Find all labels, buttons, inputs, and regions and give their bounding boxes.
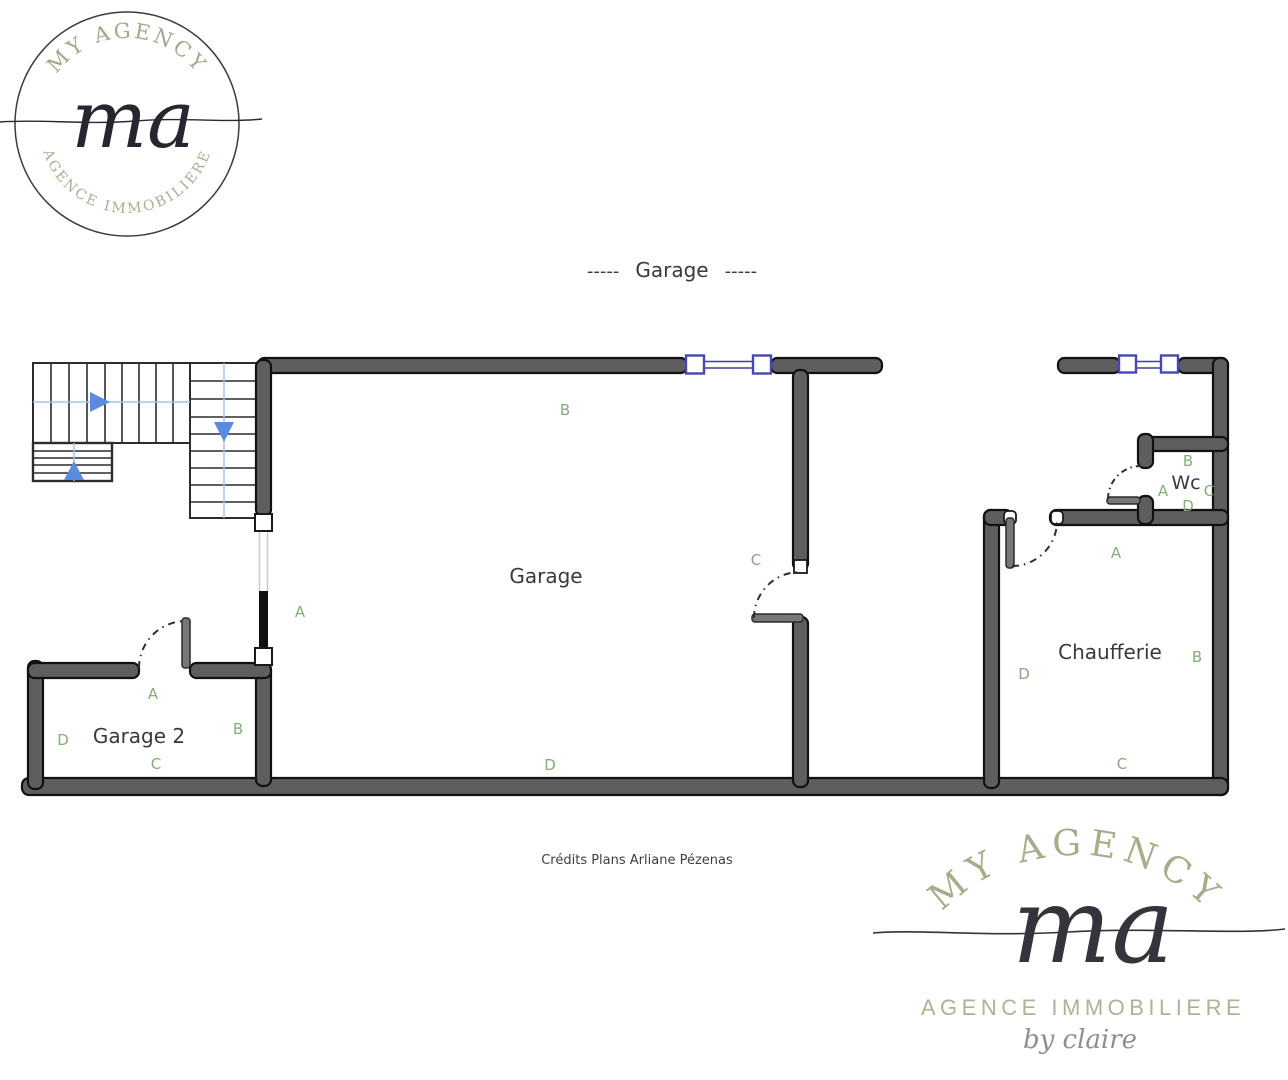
chaufferie-door-swing-arc [1012, 521, 1057, 566]
window-frame-square [753, 356, 771, 374]
wall-letter-chaufferie-a: A [1111, 544, 1122, 562]
room-label-chaufferie: Chaufferie [1058, 640, 1162, 664]
wall-letter-garage-d: D [544, 756, 556, 774]
wall-letter-wc-d: D [1182, 497, 1194, 515]
wall-connector-square [255, 648, 272, 665]
wall-letter-garage2-d: D [57, 731, 69, 749]
logo-monogram: ma [71, 73, 195, 166]
wall-letter-garage-b: B [560, 401, 570, 419]
window-frame-square [1119, 356, 1136, 373]
central-door-swing-arc [754, 572, 800, 618]
window-top-right [1119, 356, 1178, 373]
wall-letter-wc-b: B [1183, 452, 1193, 470]
garage2-door-swing-arc [139, 621, 186, 668]
wall-letter-wc-c: C [1204, 482, 1214, 500]
logo-subtitle: AGENCE IMMOBILIERE [921, 995, 1245, 1020]
window-frame-square [686, 356, 704, 374]
wall-central-lower [793, 617, 808, 787]
wall-connector-square [794, 560, 807, 573]
window-frame-square [1161, 356, 1178, 373]
wall-right-exterior [1213, 358, 1228, 795]
wall-letter-garage2-a: A [148, 685, 159, 703]
garage-left-opening [255, 514, 272, 665]
wall-chaufferie-left [984, 510, 999, 788]
wall-letter-garage2-b: B [233, 720, 243, 738]
wall-wc-stub-upper [1138, 434, 1153, 468]
wall-connector-square [1051, 511, 1063, 524]
room-label-garage2: Garage 2 [93, 724, 185, 748]
logo-byline: by claire [1023, 1025, 1137, 1055]
page: -----Garage----- [0, 0, 1288, 1080]
logo-monogram: ma [1012, 865, 1174, 987]
wall-letter-chaufferie-d: D [1018, 665, 1030, 683]
central-door-leaf [752, 614, 803, 622]
opening-jamb-lines [260, 531, 268, 591]
garage2-door-leaf [182, 618, 190, 668]
wall-garage2-left [28, 661, 43, 789]
agency-logo-bottom-right: MY AGENCY ma AGENCE IMMOBILIERE by clair… [858, 790, 1288, 1080]
window-glass-lines [1136, 362, 1162, 369]
wall-garage-left-upper [256, 360, 271, 516]
wall-garage-left-lower [256, 664, 271, 786]
window-glass-lines [704, 362, 754, 369]
room-label-garage: Garage [509, 564, 582, 588]
window-top-left [686, 356, 771, 374]
wc-door-swing-arc [1108, 466, 1141, 499]
wall-letter-wc-a: A [1158, 482, 1169, 500]
agency-logo-top-left: MY AGENCY AGENCE IMMOBILIERE ma [0, 0, 270, 250]
wall-top-mid-segment [771, 358, 882, 373]
chaufferie-door-leaf [1006, 518, 1014, 568]
logo-arc-text-top: MY AGENCY [42, 19, 212, 78]
wc-door-leaf [1107, 497, 1140, 504]
plan-credits: Crédits Plans Arliane Pézenas [541, 853, 733, 868]
wall-letter-garage-c: C [751, 551, 761, 569]
wall-garage2-top-left [28, 663, 139, 678]
wall-central-upper [793, 370, 808, 570]
wall-top-left-segment [258, 358, 687, 373]
wall-letter-chaufferie-b: B [1192, 648, 1202, 666]
plan-title: -----Garage----- [587, 258, 757, 282]
garage-door-panel [259, 591, 268, 649]
stair-flight-horizontal [33, 363, 190, 443]
wall-top-right-segment-a [1058, 358, 1120, 373]
wall-letter-garage2-c: C [151, 755, 161, 773]
wall-letter-garage-a: A [295, 603, 306, 621]
staircase [33, 363, 258, 518]
wall-connector-square [255, 514, 272, 531]
room-label-wc: Wc [1171, 472, 1200, 494]
wall-letter-chaufferie-c: C [1117, 755, 1127, 773]
